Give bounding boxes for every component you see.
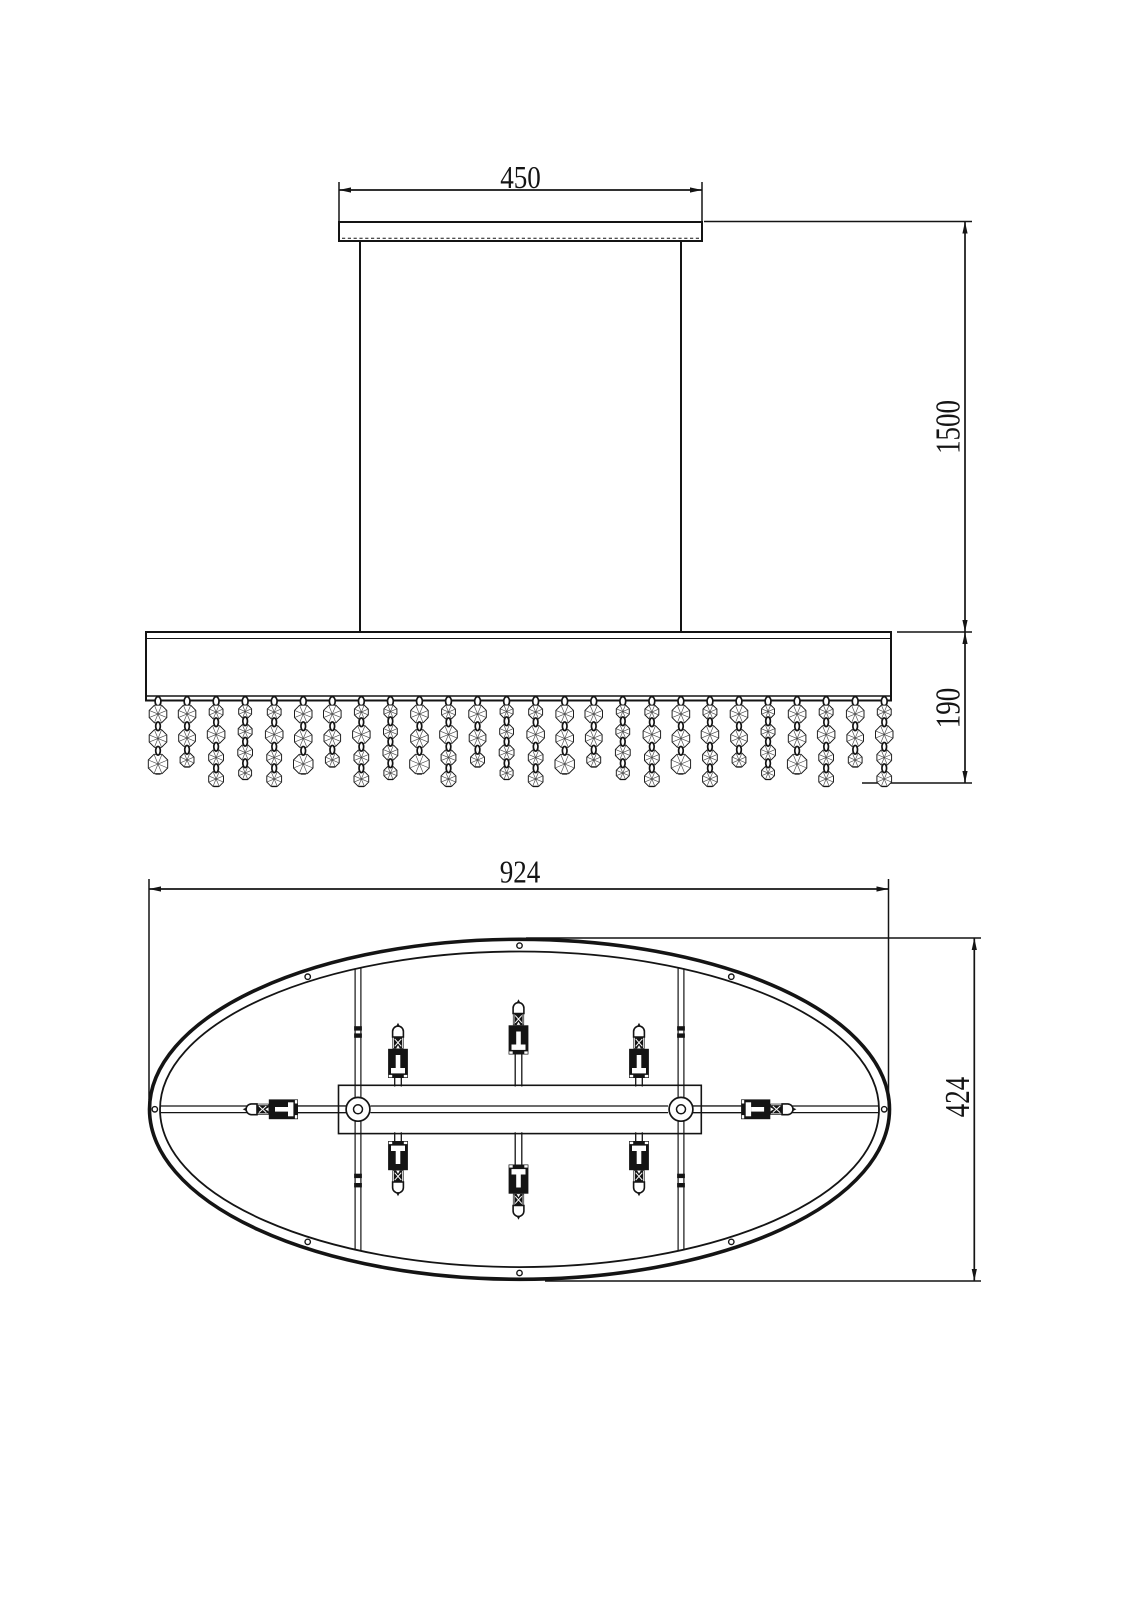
svg-text:424: 424 [937, 1076, 976, 1117]
svg-text:924: 924 [500, 856, 541, 890]
svg-text:190: 190 [928, 688, 967, 728]
svg-text:1500: 1500 [928, 400, 967, 454]
svg-text:450: 450 [500, 161, 541, 195]
